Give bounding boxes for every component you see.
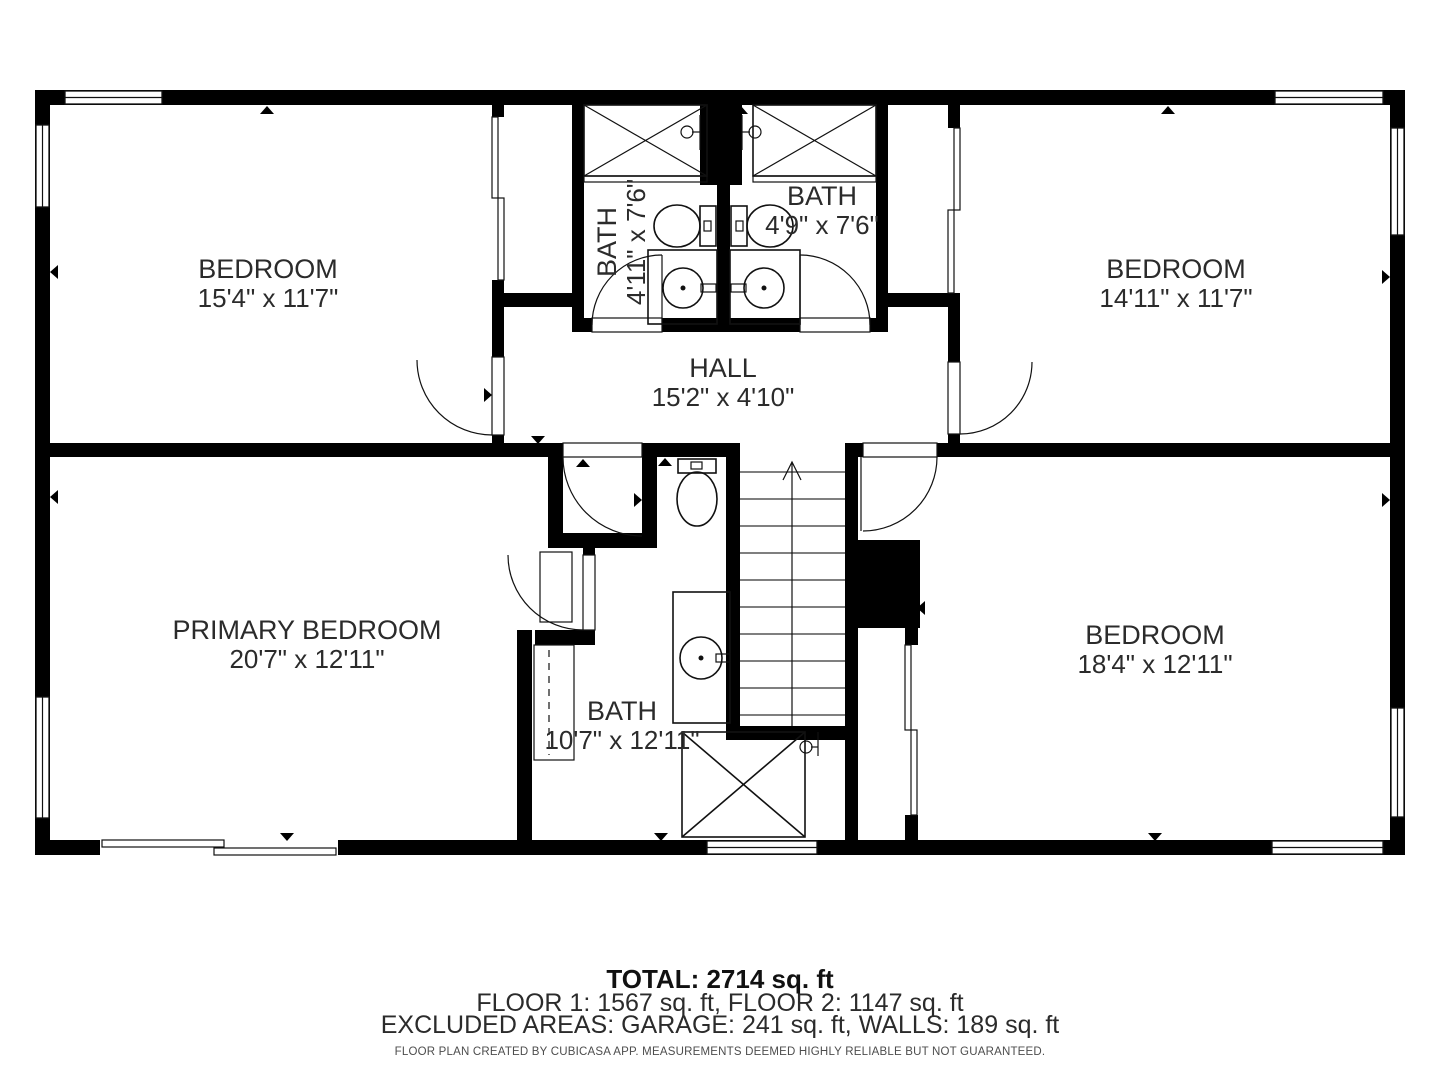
room-dimensions: 4'11" x 7'6": [622, 179, 651, 305]
room-name: BATH: [765, 182, 879, 211]
window: [1272, 841, 1383, 854]
window: [1391, 128, 1404, 235]
door: [800, 255, 870, 332]
room-name: BATH: [544, 697, 699, 726]
sink-vanity: [648, 250, 717, 324]
window: [36, 125, 49, 207]
sink-vanity: [730, 250, 800, 324]
room-label-bedroom-top-right: BEDROOM 14'11" x 11'7": [1099, 255, 1252, 313]
toilet: [677, 459, 717, 526]
room-label-bedroom-bottom-right: BEDROOM 18'4" x 12'11": [1077, 621, 1232, 679]
shower: [682, 732, 818, 837]
room-dimensions: 4'9" x 7'6": [765, 211, 879, 240]
window: [1391, 708, 1404, 817]
room-name: BEDROOM: [1099, 255, 1252, 284]
stairs: [740, 457, 845, 726]
shower-head-icon: [681, 115, 700, 150]
room-dimensions: 14'11" x 11'7": [1099, 284, 1252, 313]
sliding-door: [100, 840, 338, 855]
window: [36, 697, 49, 818]
door: [948, 362, 1032, 434]
door: [417, 357, 504, 435]
door: [861, 443, 937, 531]
door: [563, 443, 642, 536]
floor-plan-drawing: [0, 0, 1440, 1080]
shower: [742, 105, 876, 182]
shower: [584, 105, 707, 182]
room-dimensions: 20'7" x 12'11": [172, 645, 441, 674]
room-name: HALL: [652, 354, 795, 383]
room-name: BEDROOM: [1077, 621, 1232, 650]
room-label-primary-bedroom: PRIMARY BEDROOM 20'7" x 12'11": [172, 616, 441, 674]
room-name: BATH: [593, 179, 622, 305]
room-label-bath-top-right: BATH 4'9" x 7'6": [765, 182, 879, 240]
floor-plan-page: BEDROOM 15'4" x 11'7" BATH 4'11" x 7'6" …: [0, 0, 1440, 1080]
window: [1275, 91, 1383, 104]
shower-head-icon: [742, 115, 761, 150]
room-dimensions: 15'2" x 4'10": [652, 383, 795, 412]
room-dimensions: 15'4" x 11'7": [198, 284, 339, 313]
room-name: BEDROOM: [198, 255, 339, 284]
room-name: PRIMARY BEDROOM: [172, 616, 441, 645]
room-dimensions: 18'4" x 12'11": [1077, 650, 1232, 679]
door: [508, 555, 595, 630]
window: [65, 91, 162, 104]
toilet: [654, 205, 716, 247]
room-label-bath-top-left: BATH 4'11" x 7'6": [593, 179, 651, 305]
room-label-bath-bottom: BATH 10'7" x 12'11": [544, 697, 699, 755]
room-label-hall: HALL 15'2" x 4'10": [652, 354, 795, 412]
room-label-bedroom-top-left: BEDROOM 15'4" x 11'7": [198, 255, 339, 313]
room-dimensions: 10'7" x 12'11": [544, 726, 699, 755]
window: [707, 841, 817, 854]
disclaimer-text: FLOOR PLAN CREATED BY CUBICASA APP. MEAS…: [0, 1046, 1440, 1058]
excluded-areas-text: EXCLUDED AREAS: GARAGE: 241 sq. ft, WALL…: [0, 1011, 1440, 1040]
